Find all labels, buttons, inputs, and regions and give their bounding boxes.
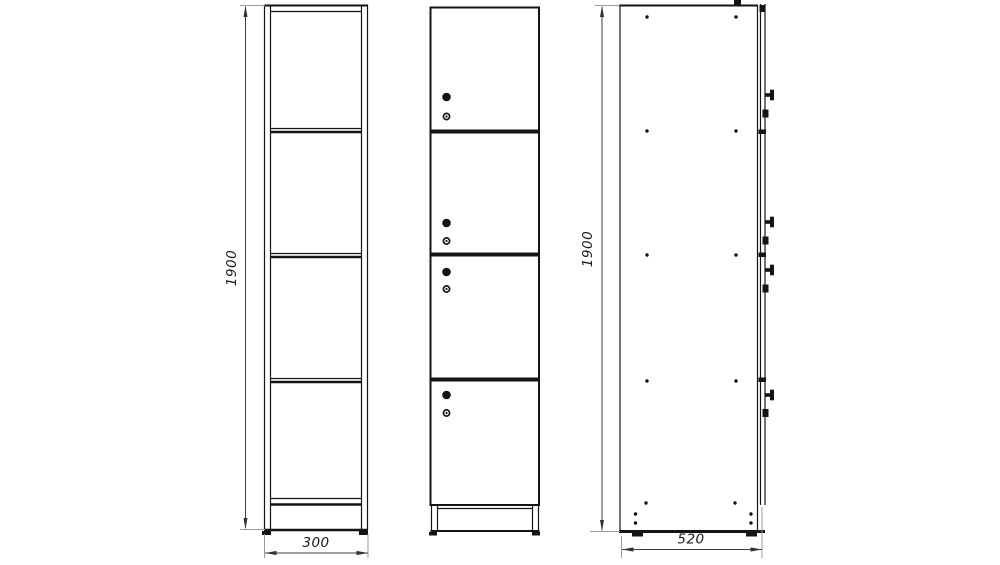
- dim-label-side-height: 1900: [580, 231, 596, 267]
- dim-label-front-width: 300: [302, 535, 329, 551]
- carcass-walls: [265, 5, 368, 531]
- side-door-edge: [759, 4, 767, 505]
- arrowhead-down-icon: [244, 518, 248, 530]
- dim-label-side-depth: 520: [677, 532, 704, 548]
- locker-three-view-drawing: 1900 300 1900 520: [0, 0, 1000, 565]
- lock-profile: [763, 285, 769, 293]
- door-knob: [442, 391, 451, 400]
- arrowhead-right-icon: [357, 551, 369, 555]
- dimension-side-height: 1900: [580, 6, 620, 532]
- knob-profile: [765, 265, 774, 276]
- side-door-knobs: [765, 90, 774, 401]
- cad-drawing-canvas: 1900 300 1900 520: [0, 0, 1000, 565]
- carcass-bottom-board: [264, 499, 368, 531]
- knob-profile: [765, 217, 774, 228]
- arrowhead-up-icon: [244, 6, 248, 18]
- lock-profile: [763, 237, 769, 245]
- side-view: [619, 0, 774, 537]
- door-view-plinth: [429, 505, 540, 536]
- arrowhead-left-icon: [622, 547, 634, 551]
- door-knob: [442, 268, 451, 277]
- door-knob: [442, 93, 451, 102]
- door-knob: [442, 219, 451, 228]
- lock-profile: [763, 409, 769, 417]
- dim-label-front-height: 1900: [224, 250, 240, 286]
- dimension-front-height: 1900: [224, 6, 265, 530]
- knob-profile: [765, 90, 774, 101]
- knob-profile: [765, 390, 774, 401]
- dimension-front-width: 300: [265, 534, 369, 558]
- screw-marks: [634, 15, 753, 524]
- arrowhead-up-icon: [600, 6, 604, 18]
- arrowhead-left-icon: [265, 551, 277, 555]
- door-view: [429, 8, 540, 536]
- shelf-3: [271, 379, 362, 383]
- shelf-2: [271, 254, 362, 258]
- shelf-1: [271, 129, 362, 133]
- front-carcass-view: [262, 5, 368, 535]
- carcass-top-board: [264, 6, 368, 12]
- arrowhead-down-icon: [600, 520, 604, 532]
- lock-profile: [763, 110, 769, 118]
- arrowhead-right-icon: [751, 547, 763, 551]
